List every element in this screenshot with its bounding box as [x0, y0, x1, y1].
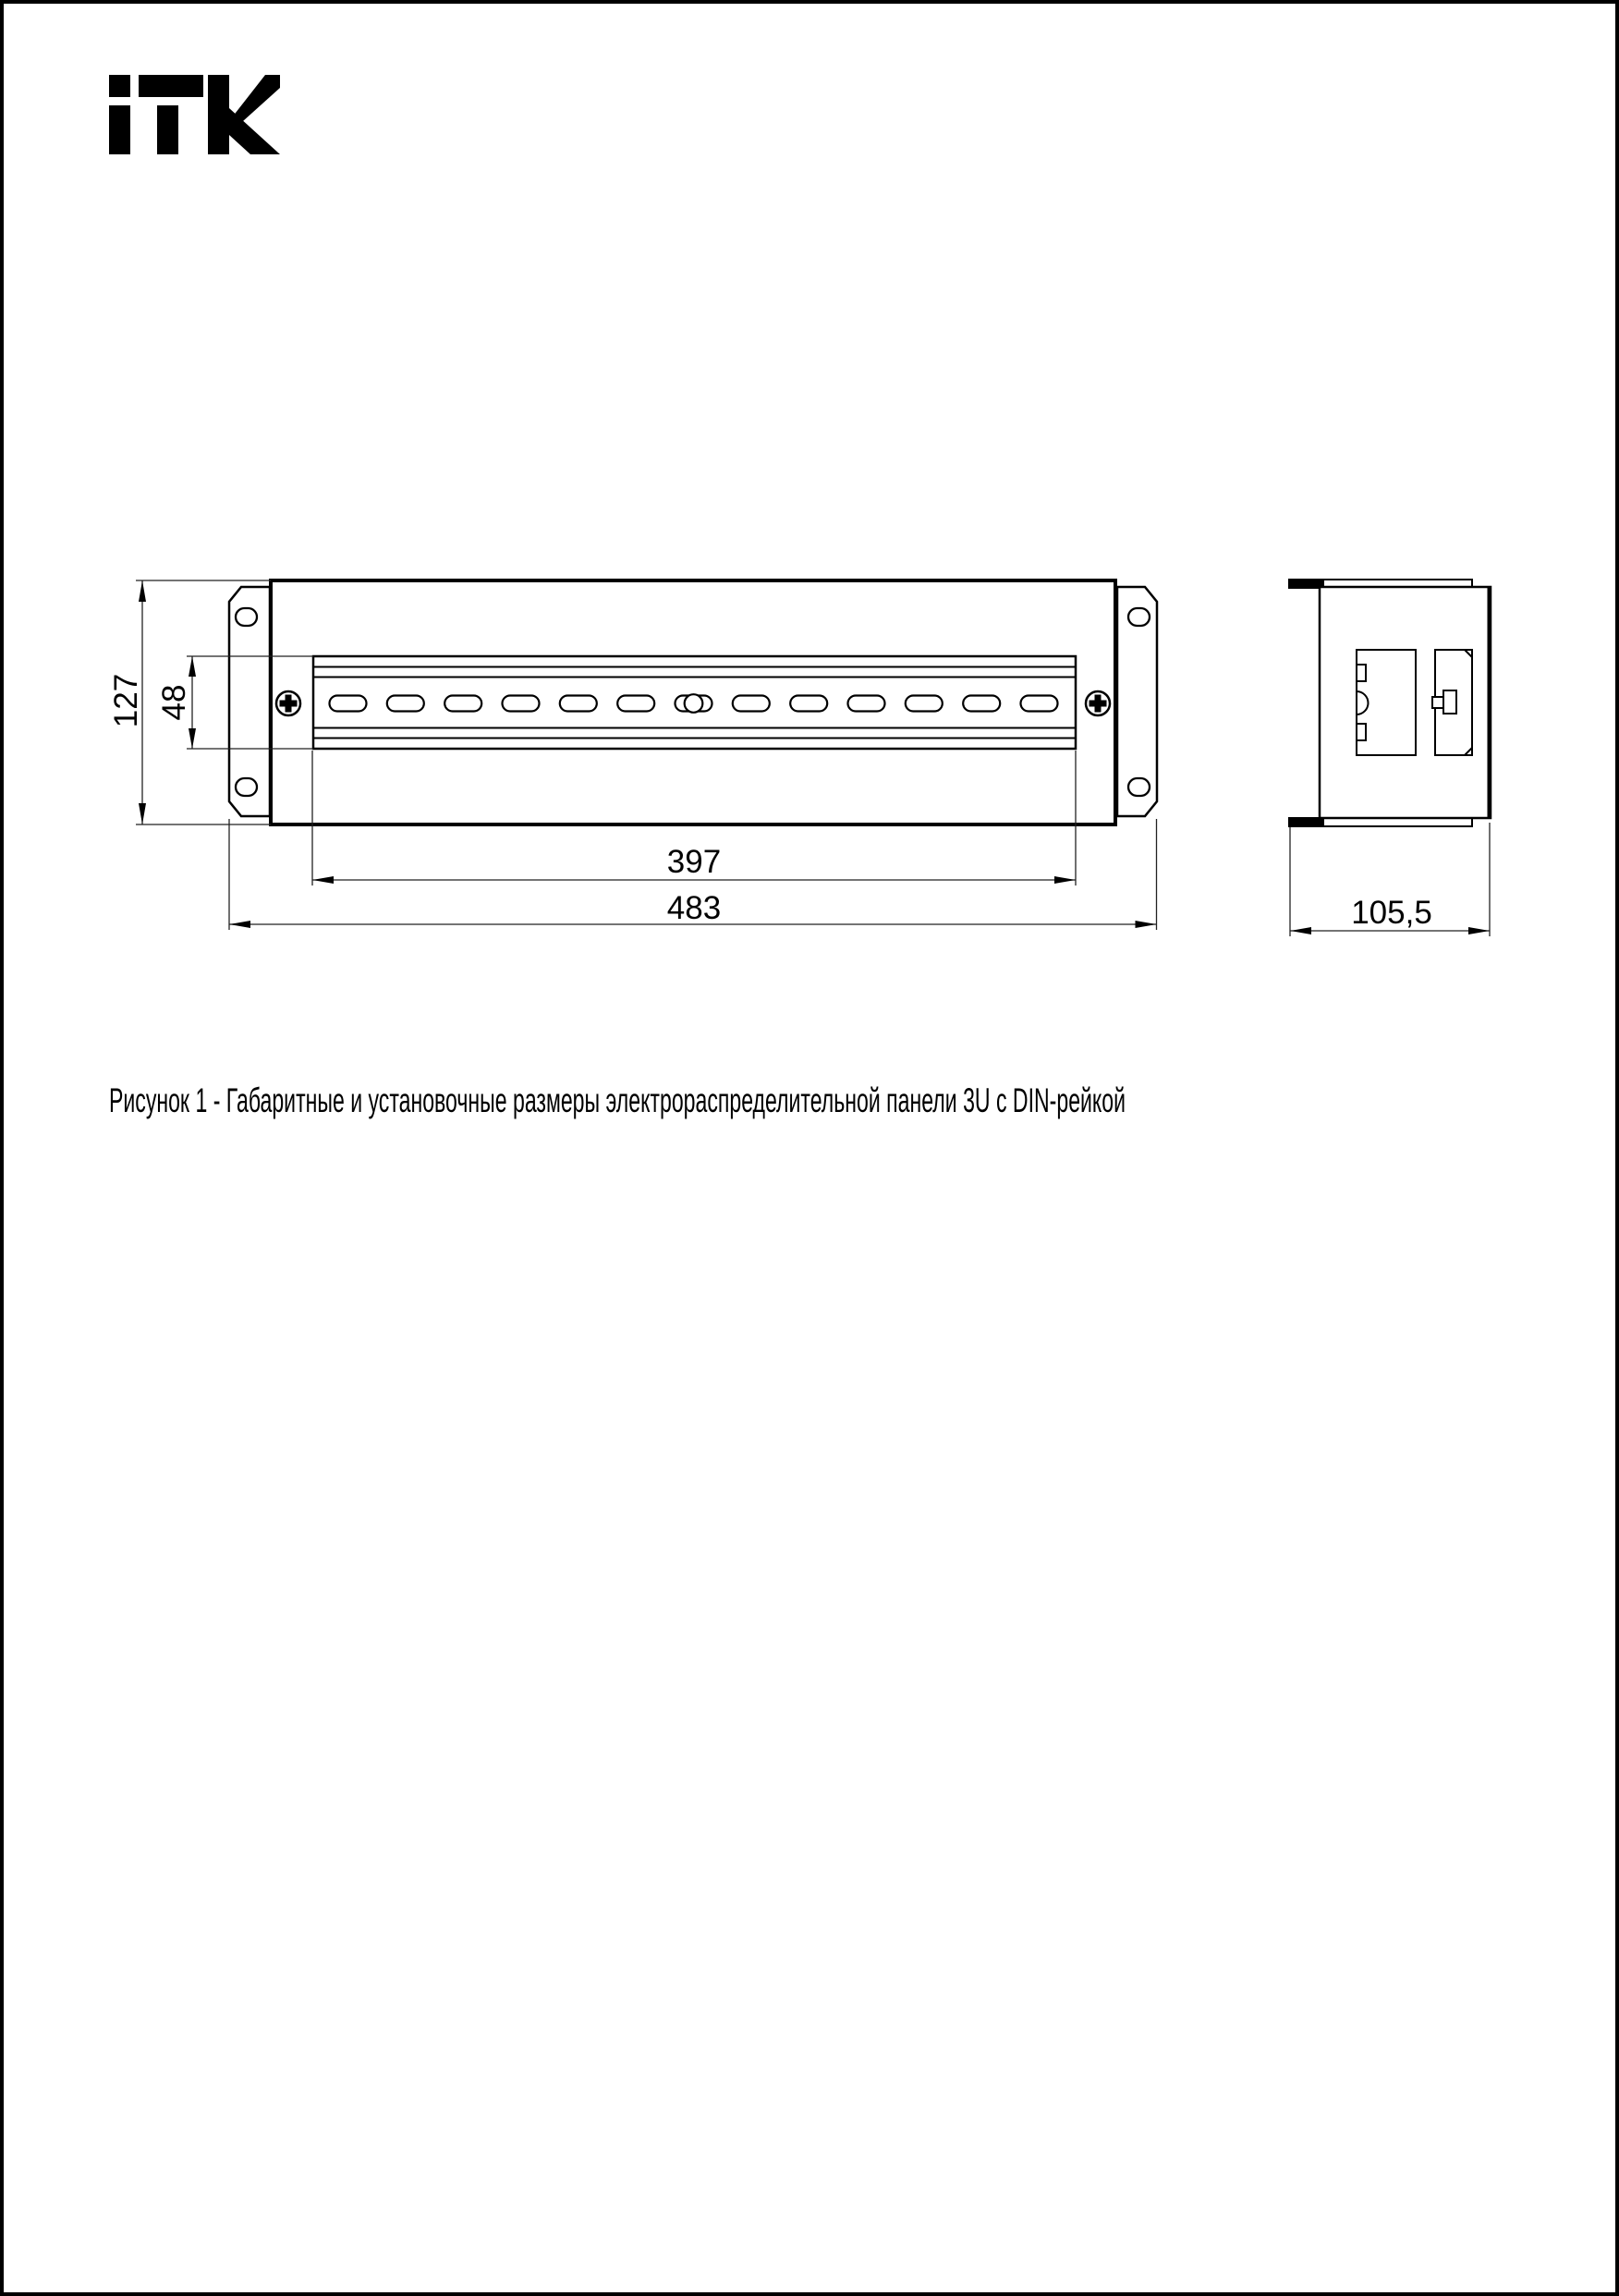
figure-caption: Рисунок 1 - Габаритные и установочные ра…	[109, 1081, 1126, 1119]
front-view	[229, 580, 1157, 824]
rail-slot	[906, 696, 943, 712]
bracket-latch	[1443, 690, 1456, 714]
logo-t-bar	[139, 75, 203, 97]
screw-cross	[286, 695, 292, 713]
side-depth-label: 105,5	[1351, 895, 1432, 931]
bracket-latch-tip	[1432, 697, 1443, 708]
rail-slot	[733, 696, 770, 712]
logo-i-stem	[109, 105, 130, 154]
rail-slot	[790, 696, 827, 712]
arrow-left-icon	[229, 921, 250, 928]
arrow-right-icon	[1136, 921, 1157, 928]
logo-i-dot	[109, 75, 130, 97]
rail-slot	[387, 696, 424, 712]
logo-k-stem	[208, 75, 229, 154]
arrow-up-icon	[189, 656, 196, 677]
rail-slot	[444, 696, 481, 712]
arrow-left-icon	[312, 876, 334, 884]
screw-cross	[1095, 695, 1102, 713]
ear-slot	[236, 778, 257, 796]
din-rail-length-label: 397	[667, 844, 721, 880]
rail-slot	[617, 696, 654, 712]
din-rail-side-profile	[1357, 650, 1416, 755]
rail-slot	[963, 696, 1000, 712]
bracket-side-profile	[1432, 650, 1472, 755]
logo-k-arm	[229, 75, 280, 121]
arrow-up-icon	[139, 580, 146, 602]
rail-slot	[848, 696, 885, 712]
ear-slot	[236, 608, 257, 626]
arrow-down-icon	[139, 803, 146, 824]
arrow-right-icon	[1468, 927, 1490, 934]
right-screw-icon	[1086, 691, 1110, 715]
ear-slot	[1128, 608, 1150, 626]
arrow-right-icon	[1054, 876, 1076, 884]
arrow-down-icon	[189, 728, 196, 749]
rail-slot	[503, 696, 540, 712]
page-border	[2, 2, 1617, 2294]
rail-slot	[1021, 696, 1058, 712]
logo-t-stem	[157, 105, 178, 154]
rail-slot	[560, 696, 597, 712]
rail-slot	[330, 696, 367, 712]
document-page: 127 48 397 483 105,5 Рисунок 1 - Габарит…	[0, 0, 1619, 2296]
arrow-left-icon	[1290, 927, 1311, 934]
rail-center-hole	[685, 694, 703, 713]
panel-width-label: 483	[667, 890, 721, 926]
ear-slot	[1128, 778, 1150, 796]
logo-k-leg	[229, 108, 280, 154]
din-zone-height-label: 48	[156, 685, 192, 721]
figure-canvas: 127 48 397 483 105,5 Рисунок 1 - Габарит…	[0, 0, 1619, 2296]
front-height-label: 127	[108, 674, 144, 727]
side-view	[1289, 579, 1491, 827]
itk-logo-icon	[109, 75, 280, 154]
left-screw-icon	[276, 691, 300, 715]
